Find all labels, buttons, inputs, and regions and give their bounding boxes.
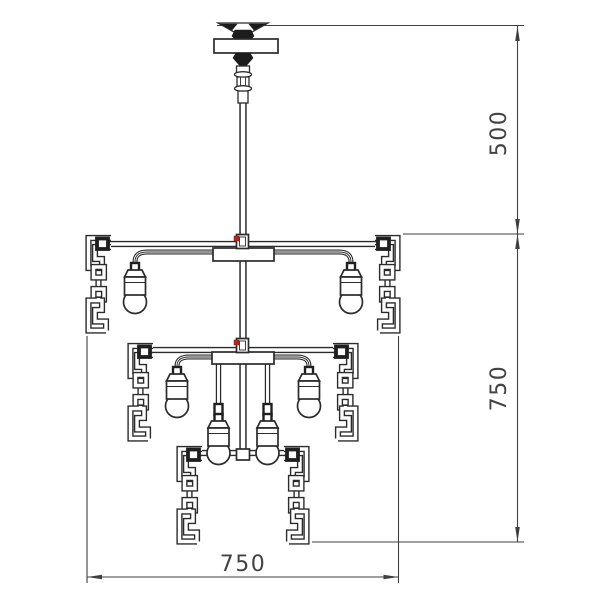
red-marker-dot <box>234 236 239 241</box>
ceiling-mount <box>214 23 278 103</box>
dimension-label-fixture-width: 750 <box>220 552 267 577</box>
chandelier-technical-drawing: 500 750 750 <box>0 0 600 600</box>
red-marker-dot <box>234 340 239 345</box>
rod-end-cap <box>237 449 250 460</box>
tier1-hub <box>213 235 274 262</box>
ceiling-plate <box>214 39 278 53</box>
dimension-label-suspension-height: 500 <box>487 110 512 157</box>
tier2-hub <box>212 339 274 365</box>
dimension-label-fixture-height: 750 <box>487 365 512 412</box>
dimension-annotations: 500 750 750 <box>87 26 524 584</box>
canopy-knuckle <box>233 53 253 66</box>
drawing-canvas: 500 750 750 <box>0 0 600 600</box>
bottom-bar <box>189 449 297 460</box>
